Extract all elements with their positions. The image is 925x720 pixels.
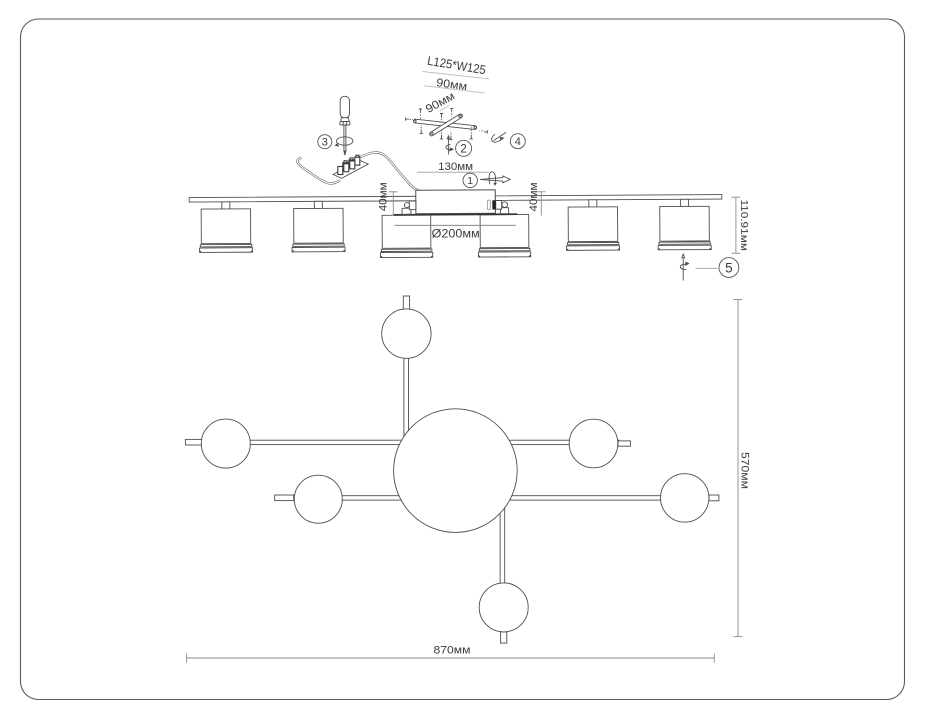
svg-text:5: 5	[725, 261, 733, 276]
svg-text:40мм: 40мм	[528, 183, 540, 212]
svg-text:40мм: 40мм	[378, 182, 390, 211]
svg-text:130мм: 130мм	[438, 161, 473, 173]
svg-text:1: 1	[467, 175, 473, 187]
svg-text:570мм: 570мм	[739, 452, 751, 489]
svg-text:110.91мм: 110.91мм	[738, 199, 750, 251]
svg-text:2: 2	[460, 144, 466, 156]
svg-text:870мм: 870мм	[434, 644, 471, 656]
svg-text:Ø200мм: Ø200мм	[432, 227, 480, 241]
svg-text:3: 3	[322, 137, 328, 149]
svg-text:4: 4	[515, 136, 521, 148]
